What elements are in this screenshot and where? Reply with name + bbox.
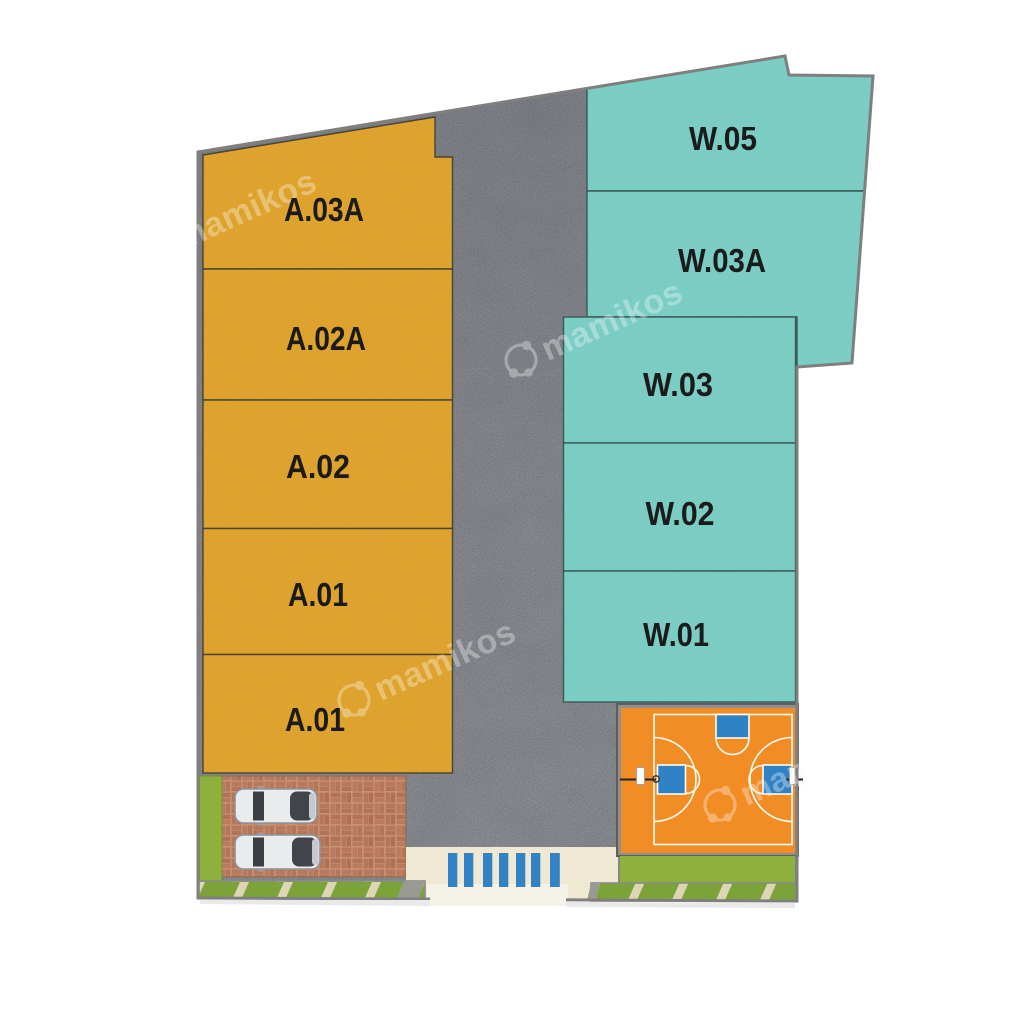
svg-text:W.01: W.01 — [643, 616, 709, 653]
svg-text:A.02A: A.02A — [286, 320, 366, 357]
svg-text:A.03A: A.03A — [284, 191, 364, 228]
svg-text:A.01: A.01 — [285, 701, 345, 738]
svg-text:A.01: A.01 — [288, 576, 348, 613]
svg-text:A.02: A.02 — [286, 448, 350, 485]
svg-text:W.02: W.02 — [646, 495, 715, 532]
svg-text:W.03: W.03 — [643, 366, 713, 403]
svg-text:W.03A: W.03A — [678, 242, 766, 279]
svg-text:W.05: W.05 — [689, 120, 757, 157]
